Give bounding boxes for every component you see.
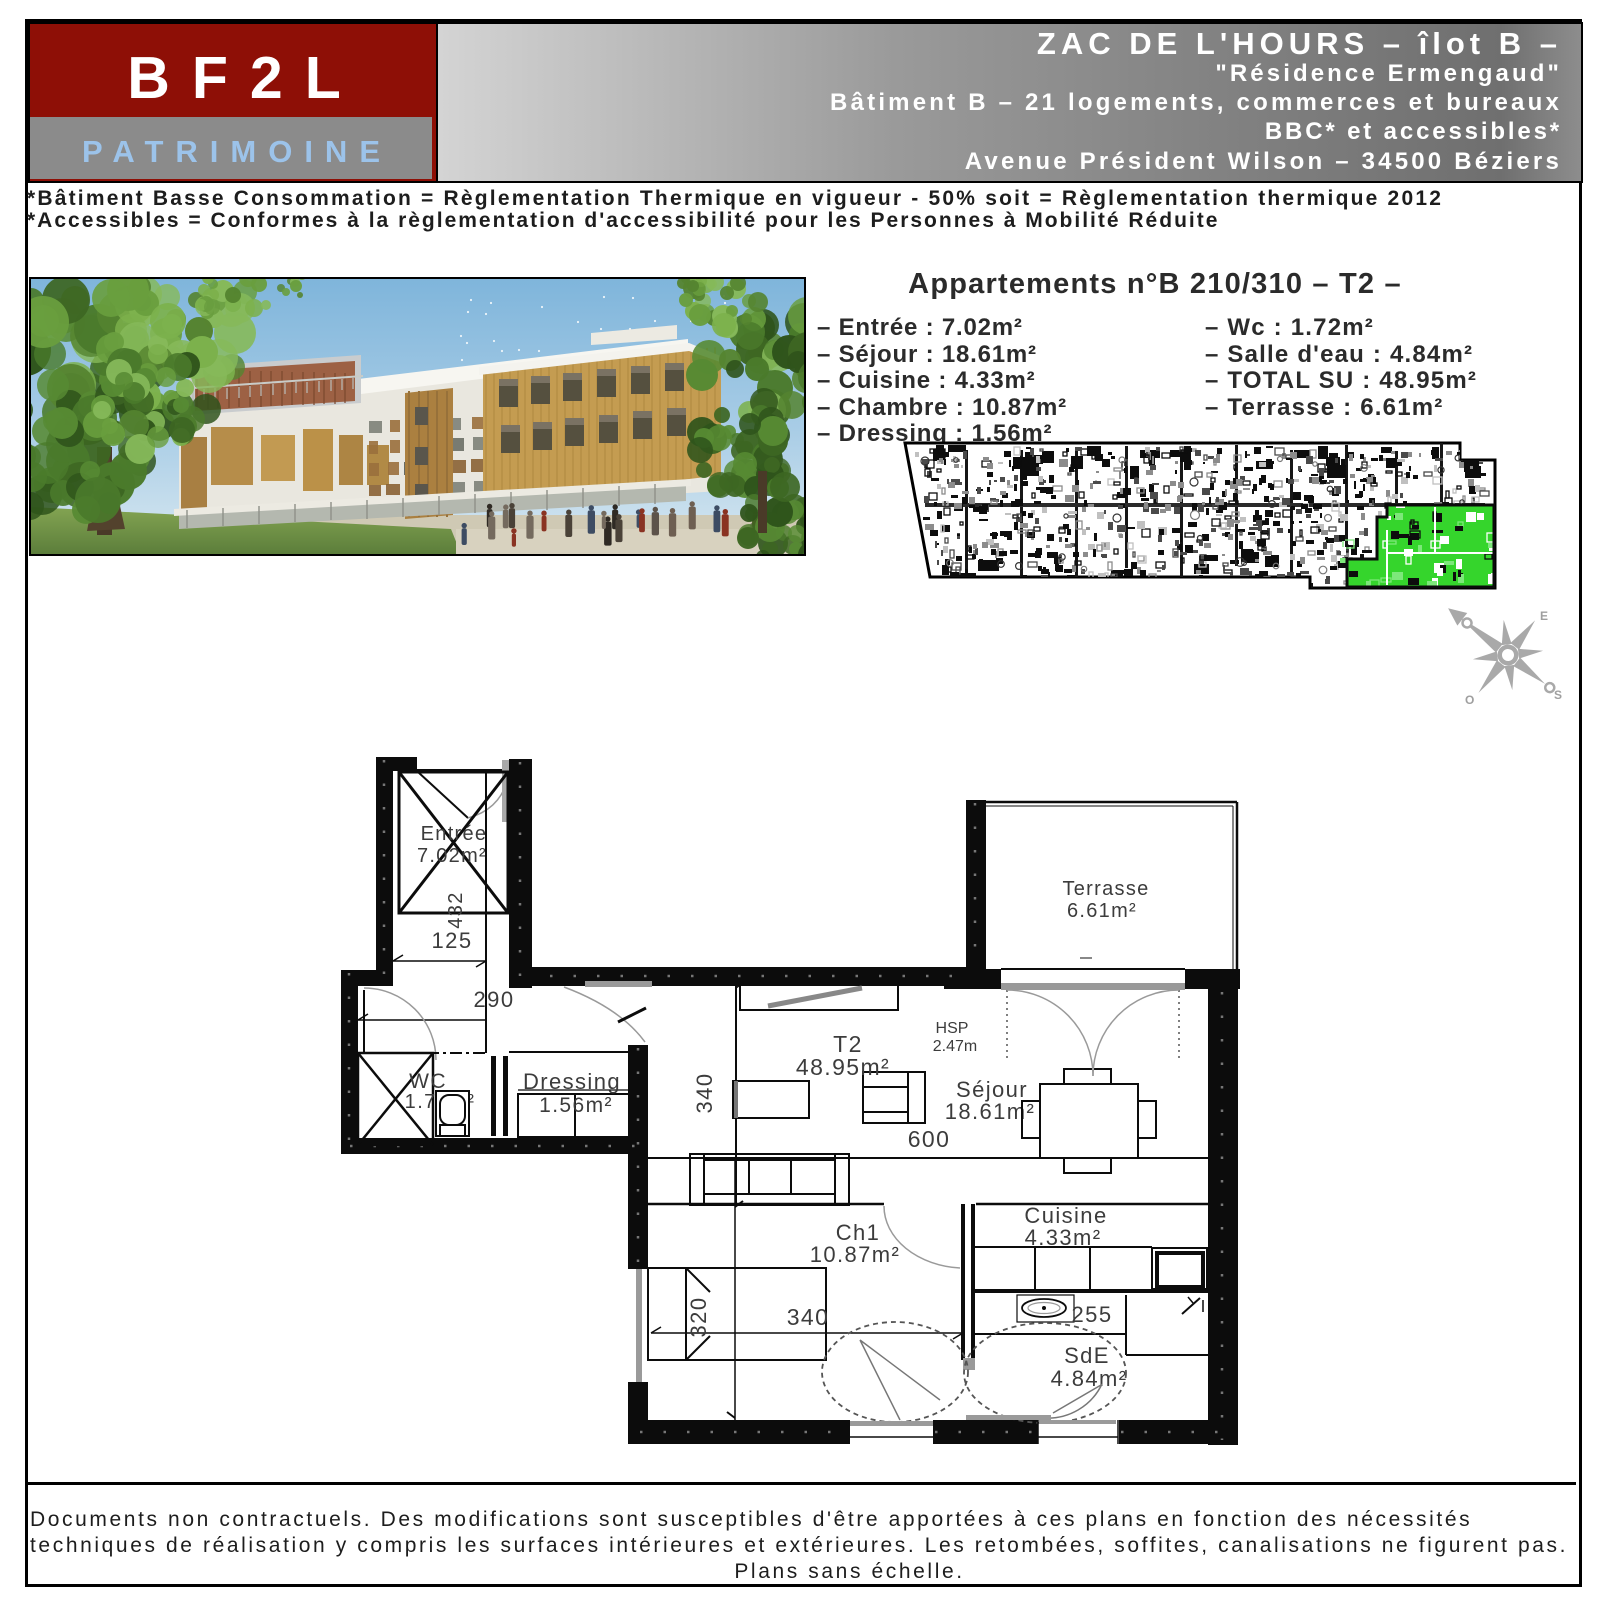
svg-text:290: 290 [474,987,515,1012]
svg-text:255: 255 [1072,1302,1113,1327]
svg-text:2.47m: 2.47m [933,1038,977,1055]
svg-text:S: S [1554,688,1562,702]
svg-text:HSP: HSP [936,1020,969,1037]
svg-text:432: 432 [445,891,467,929]
svg-text:O: O [1465,693,1474,707]
svg-text:125: 125 [432,928,473,953]
svg-text:48.95m²: 48.95m² [796,1054,890,1080]
svg-text:6.61m²: 6.61m² [1067,900,1137,922]
svg-text:4.84m²: 4.84m² [1051,1366,1128,1391]
svg-text:WC: WC [409,1070,447,1093]
svg-text:7.02m²: 7.02m² [417,845,487,867]
svg-text:Terrasse: Terrasse [1062,878,1149,900]
svg-text:1.56m²: 1.56m² [539,1094,613,1117]
svg-text:600: 600 [908,1126,951,1152]
svg-text:10.87m²: 10.87m² [810,1242,901,1267]
svg-text:E: E [1540,609,1548,623]
svg-text:340: 340 [787,1304,830,1330]
svg-text:Entrée: Entrée [421,823,488,845]
svg-text:320: 320 [686,1297,711,1338]
svg-text:Dressing: Dressing [523,1069,621,1094]
svg-text:340: 340 [692,1073,717,1114]
svg-text:SdE: SdE [1064,1343,1110,1368]
